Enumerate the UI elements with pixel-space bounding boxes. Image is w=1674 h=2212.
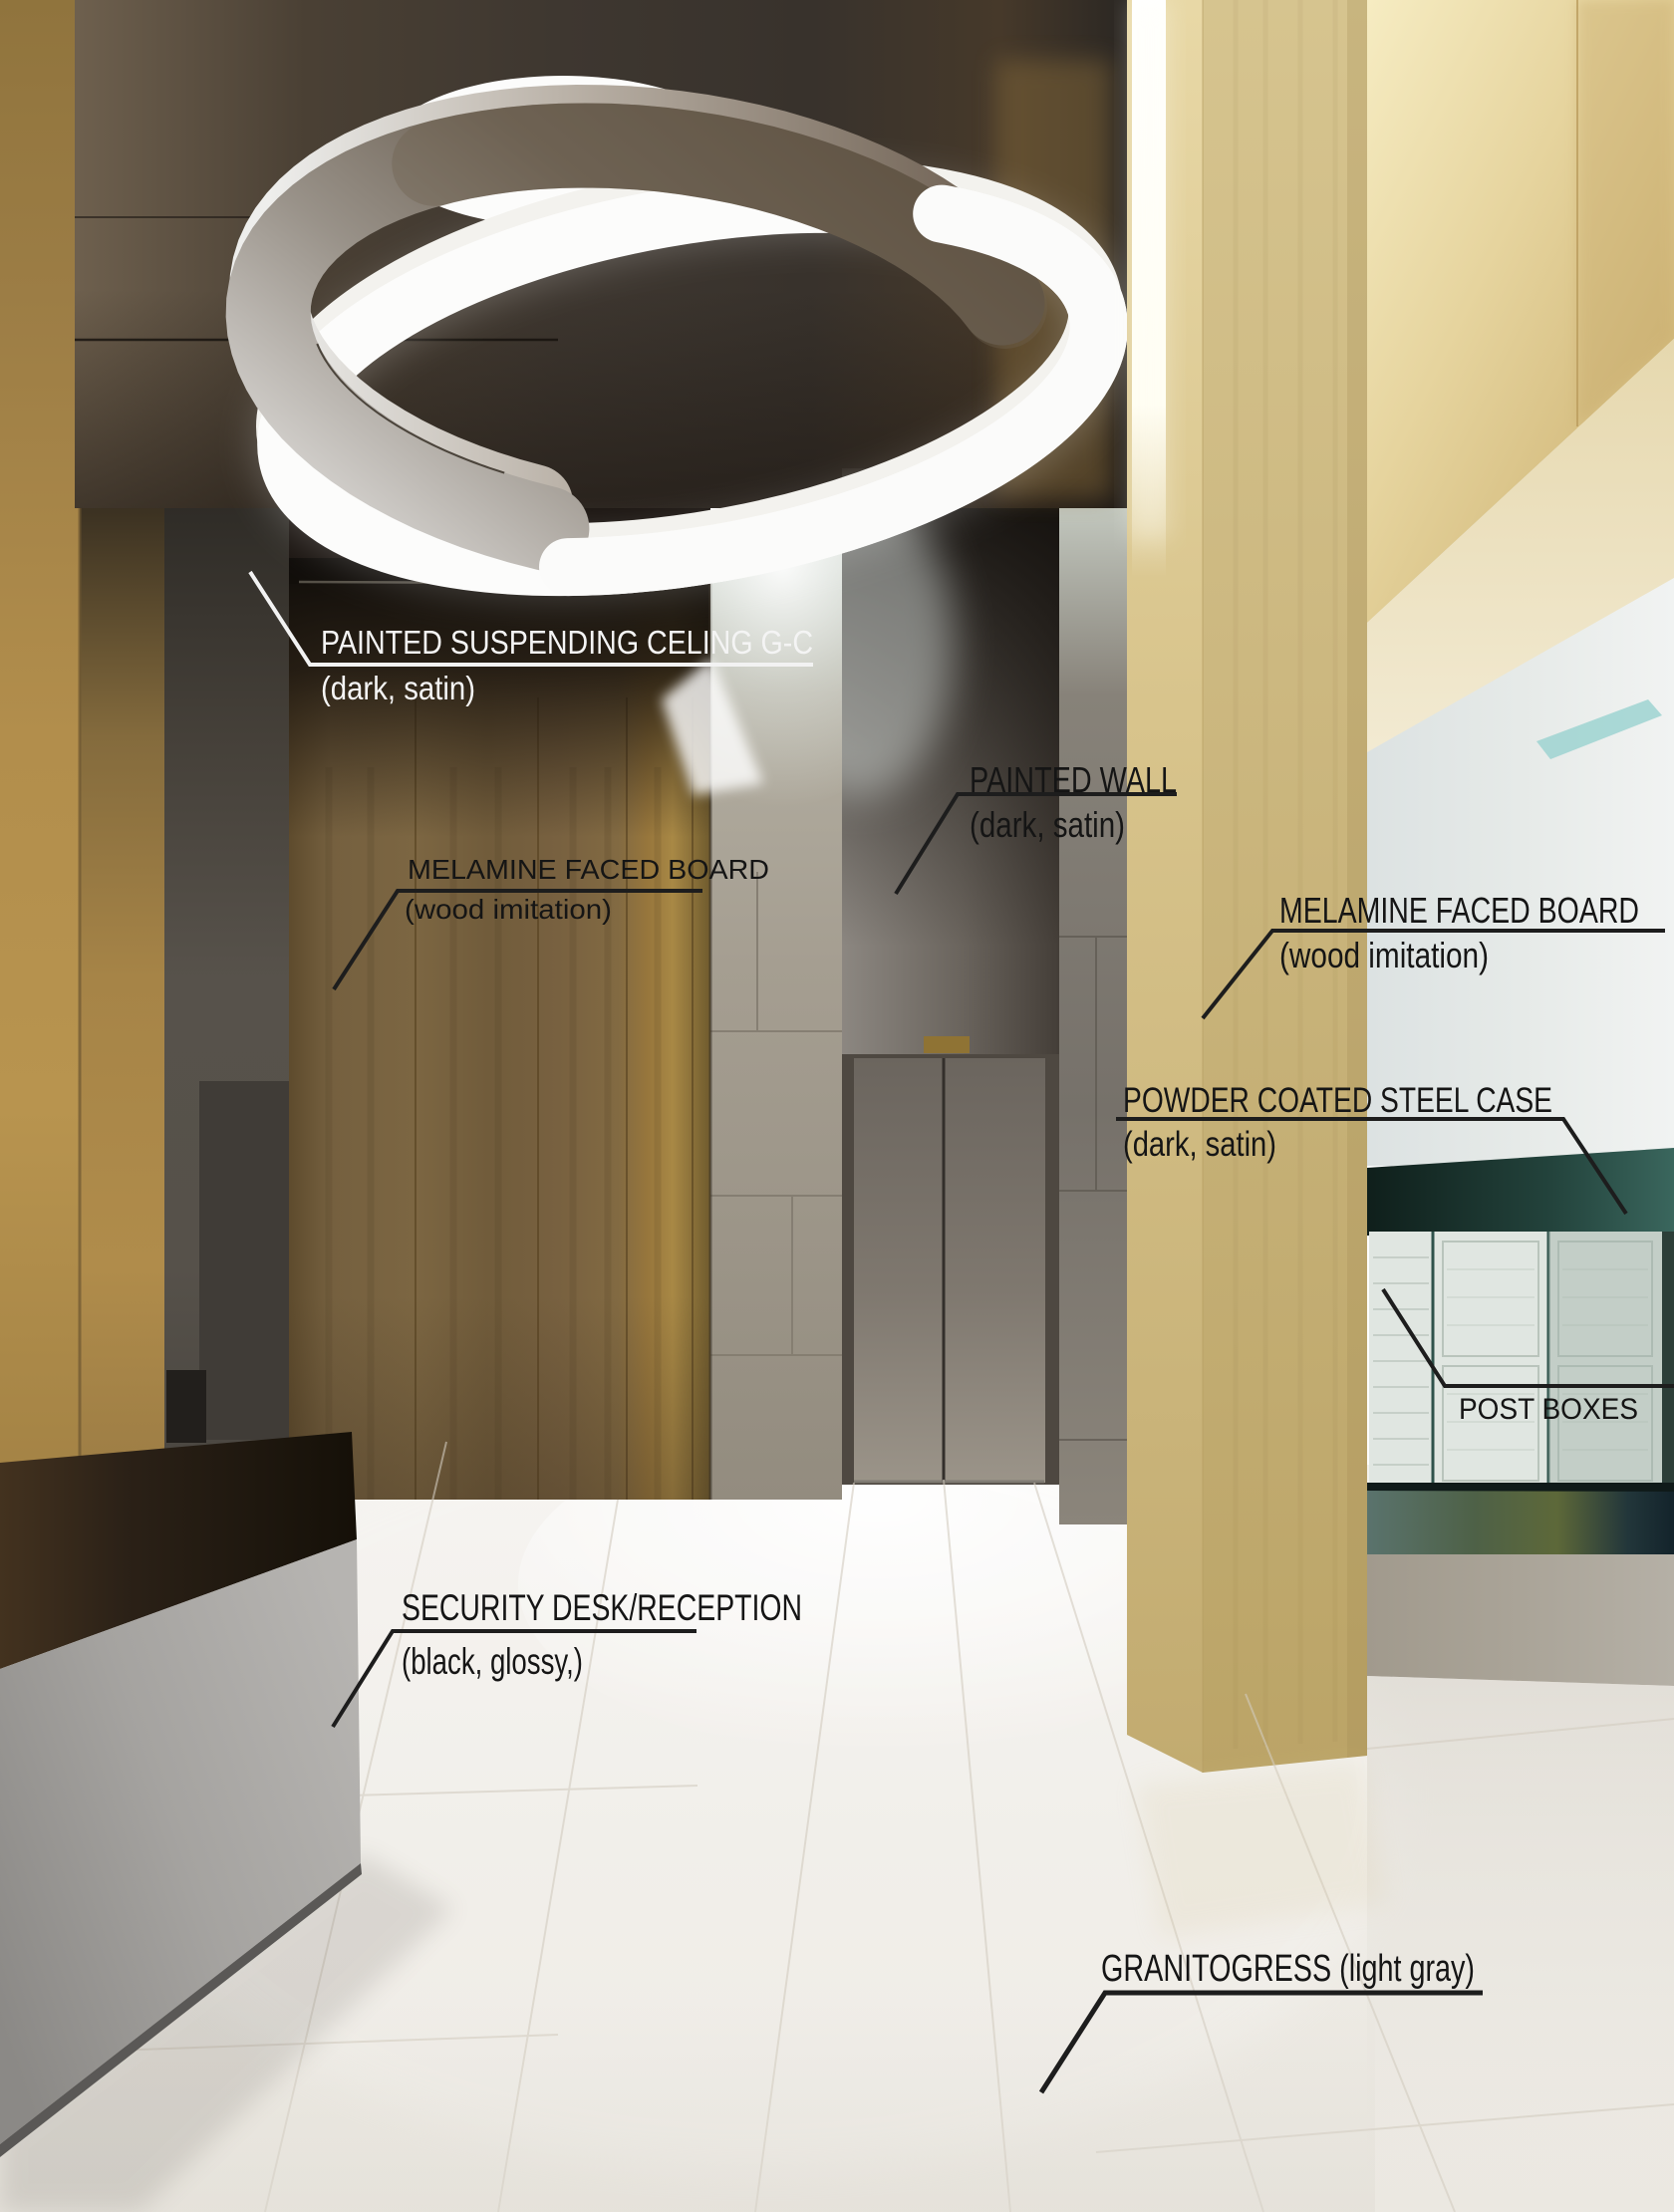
- svg-text:(black, glossy,): (black, glossy,): [402, 1641, 583, 1682]
- svg-text:PAINTED SUSPENDING CELING G-C: PAINTED SUSPENDING CELING G-C: [321, 624, 813, 661]
- svg-text:(wood imitation): (wood imitation): [405, 894, 612, 925]
- svg-text:MELAMINE FACED BOARD: MELAMINE FACED BOARD: [408, 854, 769, 885]
- svg-text:(dark, satin): (dark, satin): [970, 804, 1125, 845]
- svg-text:GRANITOGRESS (light gray): GRANITOGRESS (light gray): [1101, 1948, 1475, 1990]
- svg-text:(dark, satin): (dark, satin): [1123, 1125, 1276, 1164]
- svg-text:PAINTED WALL: PAINTED WALL: [970, 759, 1177, 800]
- svg-text:POWDER COATED STEEL CASE: POWDER COATED STEEL CASE: [1123, 1081, 1552, 1120]
- svg-text:POST BOXES: POST BOXES: [1459, 1393, 1638, 1426]
- svg-text:(wood imitation): (wood imitation): [1279, 935, 1489, 975]
- svg-text:SECURITY DESK/RECEPTION: SECURITY DESK/RECEPTION: [402, 1587, 802, 1628]
- svg-text:MELAMINE FACED BOARD: MELAMINE FACED BOARD: [1279, 890, 1639, 931]
- svg-text:(dark, satin): (dark, satin): [321, 670, 475, 706]
